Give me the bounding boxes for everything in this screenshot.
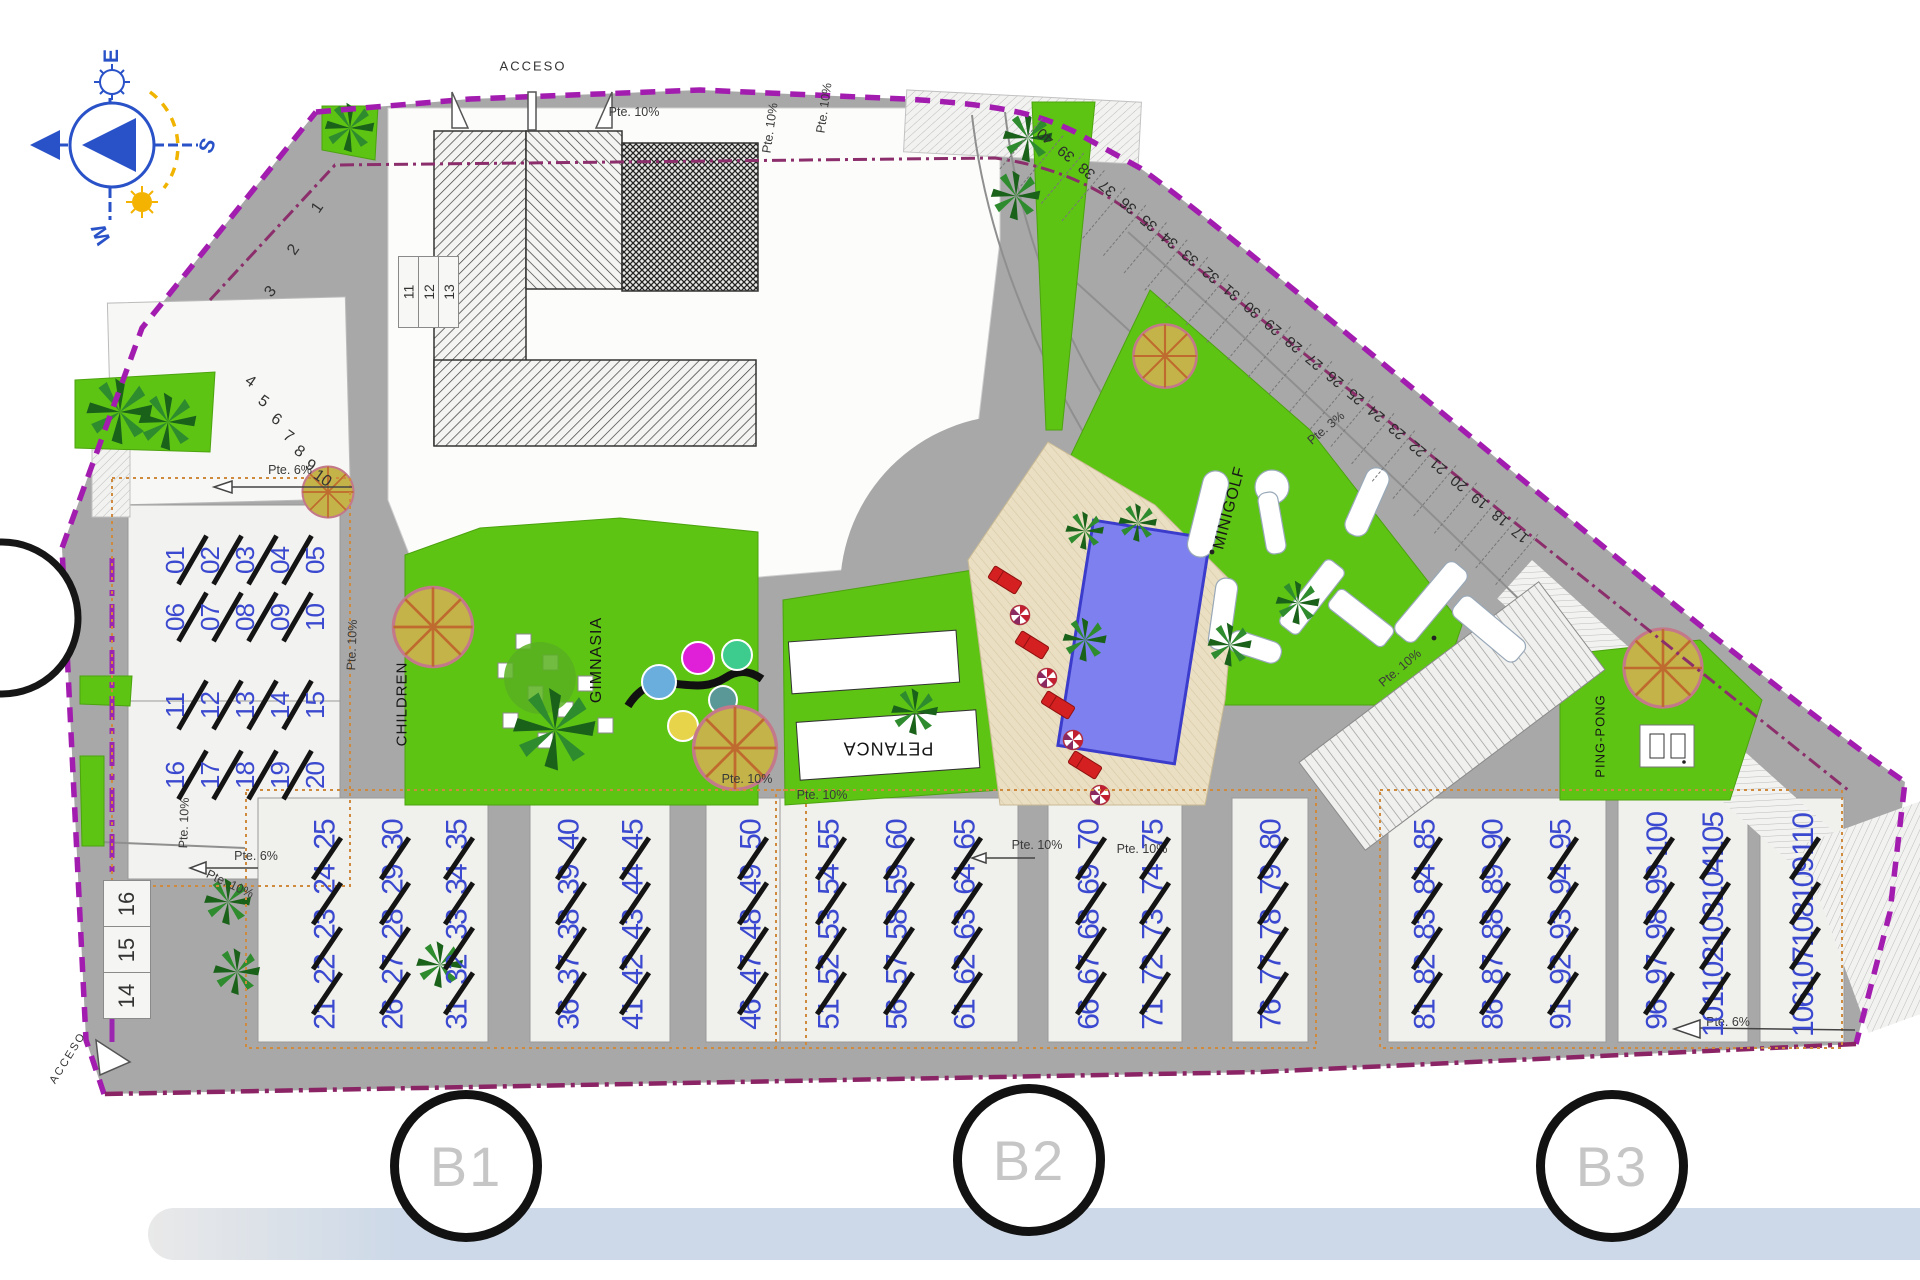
unit-number: 85 — [1398, 812, 1454, 857]
unit-number: 19 — [263, 733, 298, 817]
unit-number: 95 — [1534, 812, 1590, 857]
unit-number: 10 — [298, 575, 333, 659]
unit-number: 07 — [193, 575, 228, 659]
section-label: B3 — [1576, 1134, 1649, 1199]
unit-number: 17 — [193, 733, 228, 817]
parking-space-number: 17 — [1509, 523, 1533, 547]
slope-label: Pte. 10% — [722, 772, 773, 786]
unit-number: 40 — [542, 812, 598, 857]
section-label: B2 — [993, 1128, 1066, 1193]
unit-column-71-75: 7172737475 — [1126, 812, 1182, 1037]
unit-column-51-55: 5152535455 — [802, 812, 858, 1037]
unit-number: 110 — [1776, 812, 1832, 857]
unit-column-41-45: 4142434445 — [606, 812, 662, 1037]
unit-column-96-100: 96979899100 — [1630, 812, 1686, 1037]
unit-number: 65 — [938, 812, 994, 857]
parking-space: 13 — [439, 256, 459, 328]
unit-column-36-40: 3637383940 — [542, 812, 598, 1037]
unit-column-101-105: 101102103104105 — [1686, 812, 1742, 1037]
compass-rose: E S W — [12, 30, 222, 250]
unit-column-81-85: 8182838485 — [1398, 812, 1454, 1037]
pingpong-table — [1640, 725, 1694, 767]
parking-space-number: 12 — [420, 284, 436, 300]
compass-needle — [82, 118, 136, 172]
unit-number: 08 — [228, 575, 263, 659]
compass-east-label: E — [100, 49, 124, 63]
slope-label: Pte. 10% — [1012, 838, 1063, 852]
parking-space-number: 11 — [400, 285, 416, 300]
parking-column-14-16: 161514 — [103, 880, 151, 1019]
unit-column-86-90: 8687888990 — [1466, 812, 1522, 1037]
unit-column-46-50: 4647484950 — [724, 812, 780, 1037]
unit-number: 60 — [870, 812, 926, 857]
pavilion-roof — [622, 143, 758, 291]
clubhouse-building — [434, 131, 758, 446]
unit-number: 70 — [1062, 812, 1118, 857]
parking-space-number: 14 — [114, 983, 140, 1007]
slope-label: Pte. 10% — [609, 105, 660, 119]
parking-box-11-13: 111213 — [398, 256, 459, 328]
parking-space: 15 — [103, 927, 151, 973]
unit-number: 06 — [158, 575, 193, 659]
pingpong-area-label: PING-PONG — [1593, 694, 1608, 777]
parking-space: 12 — [419, 256, 439, 328]
slope-label: Pte. 10% — [344, 619, 360, 670]
unit-number: 25 — [298, 812, 354, 857]
gym-area-label: GIMNASIA — [588, 617, 606, 703]
unit-column-31-35: 3132333435 — [430, 812, 486, 1037]
unit-row-16-20: 1617181920 — [158, 733, 334, 817]
unit-number: 75 — [1126, 812, 1182, 857]
unit-column-106-110: 106107108109110 — [1776, 812, 1832, 1037]
unit-row-06-10: 0607080910 — [158, 575, 334, 659]
unit-number: 100 — [1630, 812, 1686, 857]
parking-space-number: 13 — [440, 284, 456, 300]
unit-column-76-80: 7677787980 — [1244, 812, 1300, 1037]
petanca-area-label: PETANCA — [843, 738, 934, 759]
west-arrow — [30, 130, 60, 160]
unit-number: 45 — [606, 812, 662, 857]
unit-number: 105 — [1686, 812, 1742, 857]
unit-column-56-60: 5657585960 — [870, 812, 926, 1037]
unit-column-61-65: 6162636465 — [938, 812, 994, 1037]
slope-label: Pte. 6% — [234, 849, 278, 863]
unit-column-66-70: 6667686970 — [1062, 812, 1118, 1037]
parking-space-number: 16 — [114, 891, 140, 915]
unit-number: 20 — [298, 733, 333, 817]
slope-label: Pte. 10% — [797, 788, 848, 802]
unit-number: 50 — [724, 812, 780, 857]
section-marker-b3: B3 — [1536, 1090, 1688, 1242]
unit-number: 09 — [263, 575, 298, 659]
unit-number: 18 — [228, 733, 263, 817]
parking-space: 16 — [103, 880, 151, 927]
unit-number: 30 — [366, 812, 422, 857]
section-marker-b2: B2 — [953, 1084, 1105, 1236]
unit-number: 55 — [802, 812, 858, 857]
unit-column-26-30: 2627282930 — [366, 812, 422, 1037]
site-plan: E S W ACCESO ACCESO CHILDREN GIMNASIA PE… — [0, 0, 1920, 1280]
unit-number: 80 — [1244, 812, 1300, 857]
unit-number: 35 — [430, 812, 486, 857]
unit-column-21-25: 2122232425 — [298, 812, 354, 1037]
section-marker-b1: B1 — [390, 1090, 542, 1242]
parking-space: 14 — [103, 973, 151, 1019]
unit-number: 90 — [1466, 812, 1522, 857]
parking-space: 11 — [398, 256, 419, 328]
unit-column-91-95: 9192939495 — [1534, 812, 1590, 1037]
parking-space-number: 15 — [114, 937, 140, 961]
unit-number: 16 — [158, 733, 193, 817]
acceso-top-label: ACCESO — [500, 59, 567, 74]
children-area-label: CHILDREN — [394, 662, 411, 747]
section-label: B1 — [430, 1134, 503, 1199]
